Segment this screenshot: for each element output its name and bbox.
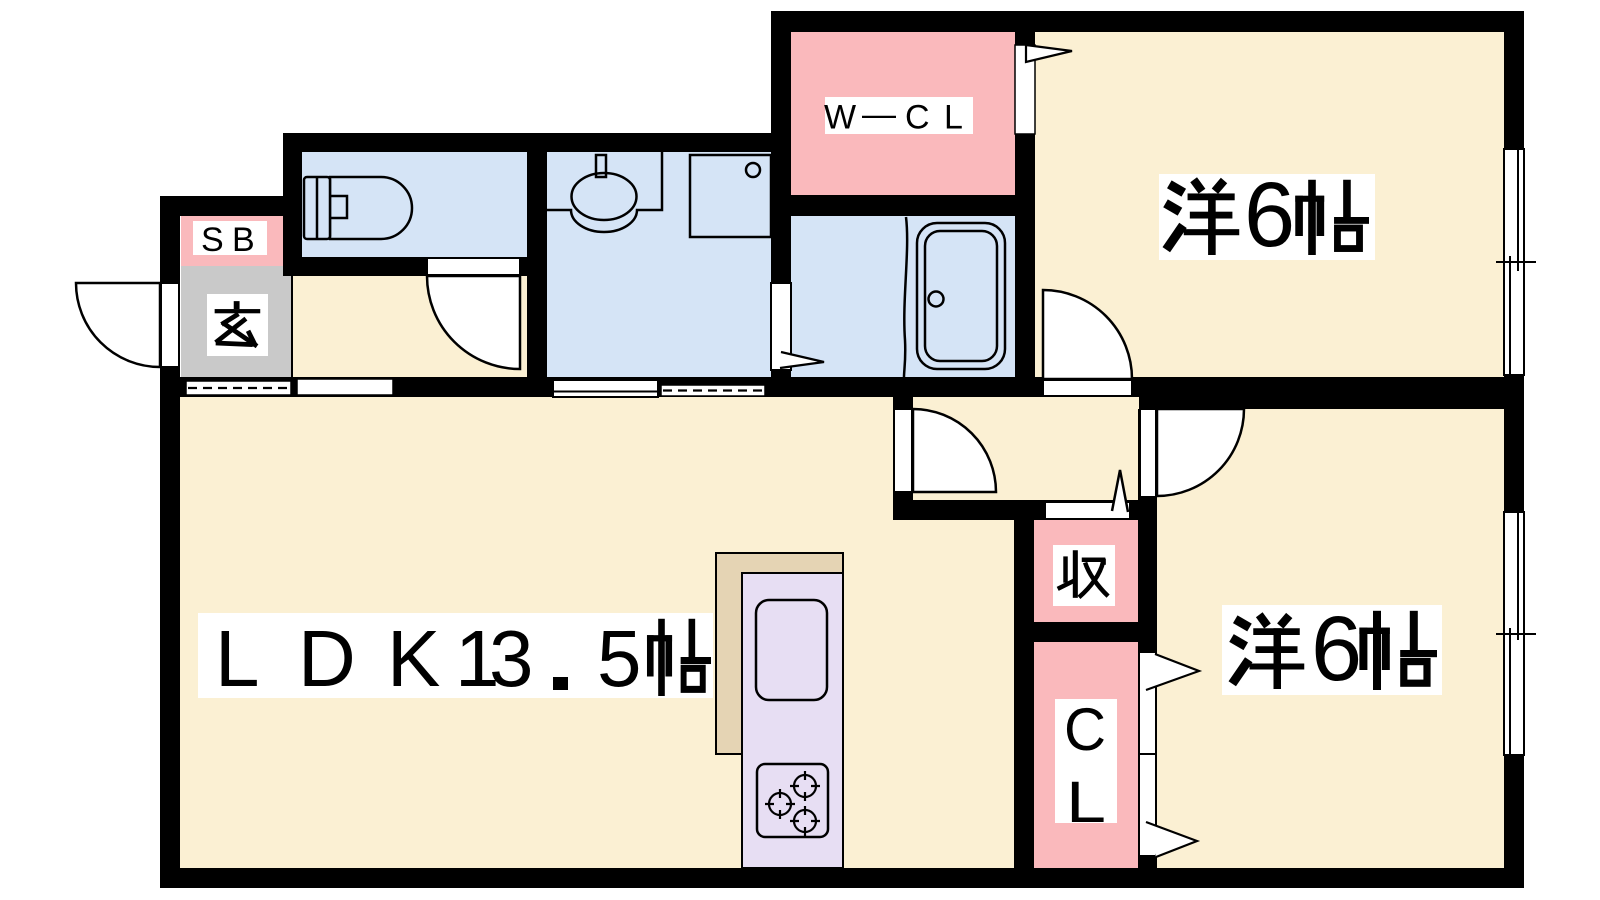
svg-text:L: L — [1066, 770, 1106, 835]
svg-text:5: 5 — [597, 614, 642, 703]
svg-text:—: — — [862, 96, 896, 134]
svg-text:K: K — [387, 614, 440, 703]
svg-text:6: 6 — [1244, 164, 1295, 266]
svg-text:6: 6 — [1311, 598, 1362, 700]
svg-text:C: C — [1064, 696, 1106, 763]
svg-text:D: D — [298, 614, 356, 703]
svg-text:B: B — [232, 221, 255, 259]
svg-text:L: L — [215, 614, 260, 703]
svg-text:S: S — [201, 221, 224, 259]
svg-text:C: C — [905, 99, 930, 137]
svg-text:L: L — [944, 99, 963, 137]
svg-text:3: 3 — [489, 614, 534, 703]
svg-text:W: W — [824, 99, 856, 137]
